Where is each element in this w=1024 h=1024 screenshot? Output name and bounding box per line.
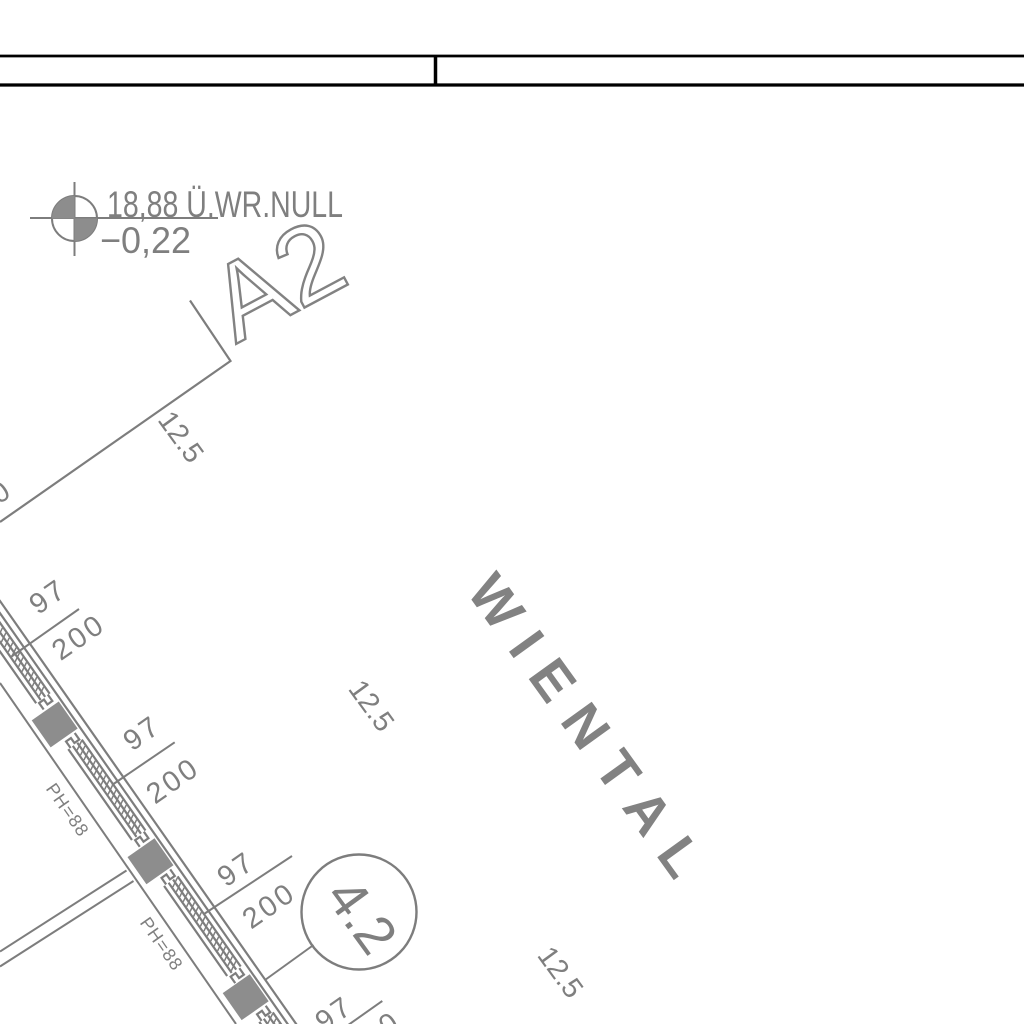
svg-text:−0,22: −0,22 <box>100 220 191 261</box>
